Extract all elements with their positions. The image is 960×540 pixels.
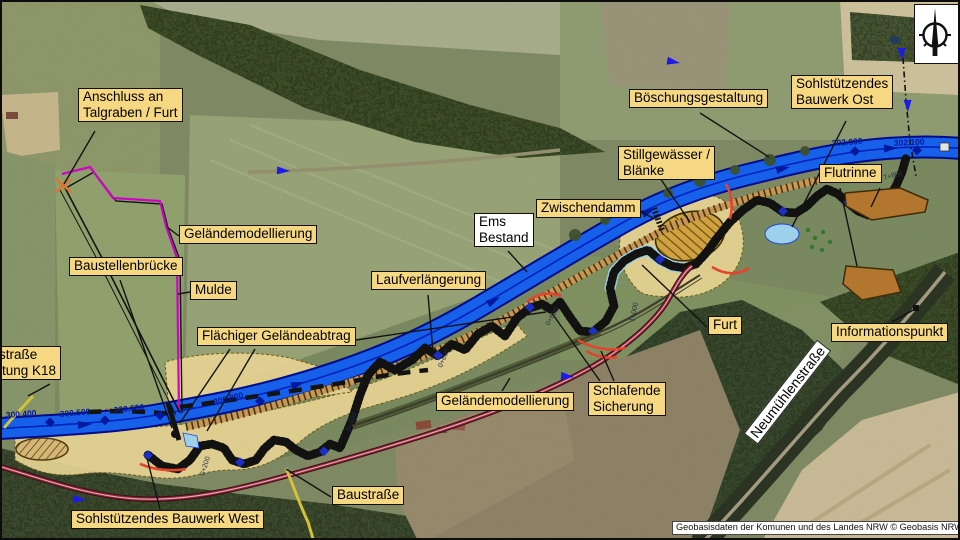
map-attribution: Geobasisdaten der Komunen und des Landes… <box>672 521 960 535</box>
map-label-sohlbauwerk-west: Sohlstützendes Bauwerk West <box>71 510 264 529</box>
map-label-boeschungsgestaltung: Böschungsgestaltung <box>629 89 768 108</box>
map-label-stillgewaesser: Stillgewässer / Blänke <box>618 146 715 180</box>
plan-map: 300.400 300.500 300.600 300.800 302.000 … <box>0 0 960 540</box>
map-label-anschluss-talgraben: Anschluss an Talgraben / Furt <box>78 88 183 122</box>
map-label-ems-bestand: Ems Bestand <box>474 213 534 247</box>
map-label-gelaendemodellierung-s: Geländemodellierung <box>436 392 574 411</box>
map-label-flutrinne: Flutrinne <box>819 164 882 183</box>
north-arrow-box <box>914 4 960 64</box>
map-label-mulde: Mulde <box>190 281 237 300</box>
map-label-baustellenbruecke: Baustellenbrücke <box>69 257 183 276</box>
map-label-laufverlaengerung: Laufverlängerung <box>371 271 486 290</box>
map-label-sohlbauwerk-ost: Sohlstützendes Bauwerk Ost <box>791 75 893 109</box>
map-label-flaechiger-gelaendeabtrag: Flächiger Geländeabtrag <box>197 327 356 346</box>
map-label-furt: Furt <box>708 316 742 335</box>
map-label-zwischendamm: Zwischendamm <box>536 199 641 218</box>
map-label-gelaendemodellierung-nw: Geländemodellierung <box>179 225 317 244</box>
map-label-informationspunkt: Informationspunkt <box>831 323 948 342</box>
map-label-schlafende-sicherung: Schlafende Sicherung <box>588 382 666 416</box>
map-label-baustrasse: Baustraße <box>332 486 404 505</box>
map-label-baustrasse-k18: Baustraße Richtung K18 <box>0 346 61 380</box>
north-arrow-icon <box>915 5 956 60</box>
